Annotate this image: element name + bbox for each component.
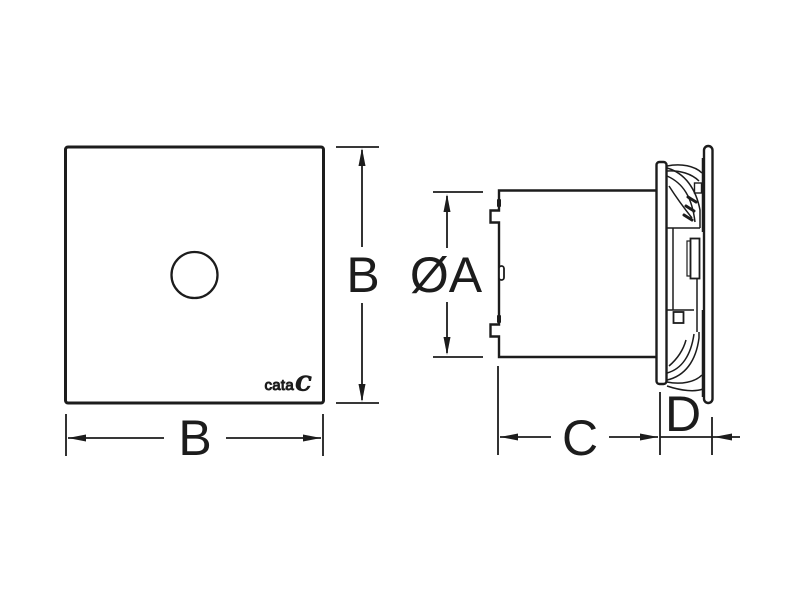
brand-logo-symbol-icon: C <box>296 372 312 396</box>
bottom-scroll-outer <box>667 332 699 380</box>
dimension-depth-c: C <box>498 366 660 466</box>
arrowhead-down-icon <box>444 337 451 355</box>
arrowhead-down-icon <box>359 384 366 402</box>
front-view: cata C <box>66 147 324 403</box>
top-bracket <box>695 183 702 193</box>
front-panel-outline <box>66 147 324 403</box>
arrowhead-right-icon <box>303 435 321 442</box>
height-b-label: B <box>346 247 379 303</box>
dimension-depth-d: D <box>660 386 740 455</box>
top-scroll-inner <box>669 186 692 218</box>
dimension-height-b: B <box>336 147 380 403</box>
blade-mark <box>688 197 696 202</box>
arrowhead-right-icon <box>640 434 658 441</box>
motor-body <box>691 239 700 279</box>
arrowhead-up-icon <box>359 148 366 166</box>
bottom-tab <box>674 312 684 323</box>
front-cover-edge <box>704 146 713 403</box>
arrowhead-left-icon <box>68 435 86 442</box>
fan-internals <box>667 158 703 397</box>
depth-d-label: D <box>665 386 701 442</box>
fan-dimension-drawing: cata C B B <box>0 0 800 600</box>
brand-logo-text: cata <box>264 377 294 394</box>
depth-c-label: C <box>562 410 598 466</box>
width-b-label: B <box>178 410 211 466</box>
duct-body-outline <box>491 191 658 358</box>
motor-mount-strip <box>687 241 691 276</box>
diameter-a-label: ØA <box>410 247 483 303</box>
technical-drawing-page: cata C B B <box>0 0 800 600</box>
top-shroud-outer-curve <box>667 165 702 173</box>
blade-mark <box>686 206 694 211</box>
dimension-diameter-a: ØA <box>410 192 483 357</box>
mounting-plate-edge <box>657 162 667 384</box>
side-view <box>491 146 713 403</box>
clip-nub-top <box>497 199 501 207</box>
arrowhead-up-icon <box>444 194 451 212</box>
dimension-width-b: B <box>66 410 323 466</box>
arrowhead-left-icon <box>500 434 518 441</box>
arrowhead-left-icon <box>714 434 732 441</box>
clip-nub-bottom <box>497 315 501 323</box>
duct-slot <box>499 266 504 280</box>
